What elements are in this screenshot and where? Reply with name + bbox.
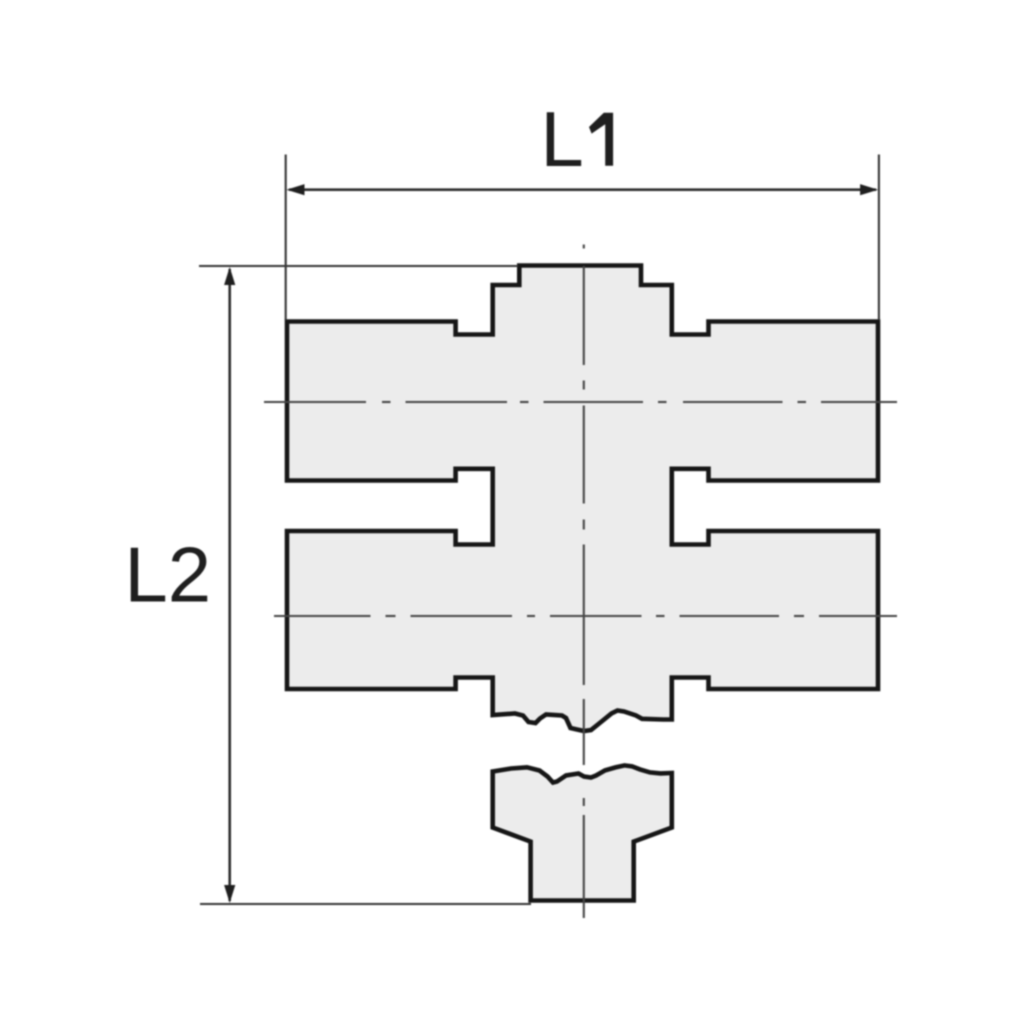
svg-text:L: L — [540, 95, 583, 183]
svg-text:L2: L2 — [124, 530, 211, 618]
